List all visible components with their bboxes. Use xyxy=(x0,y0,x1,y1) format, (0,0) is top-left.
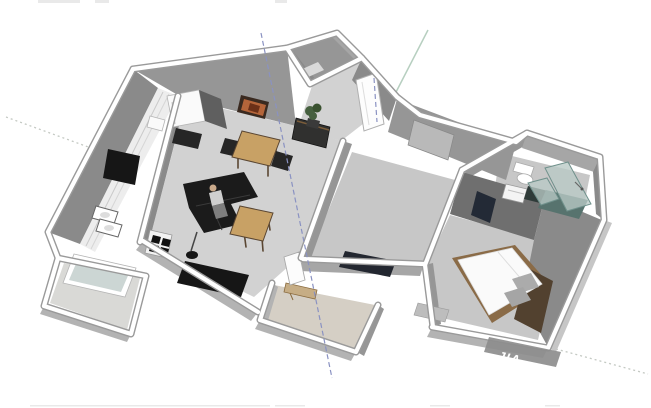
plant-foliage xyxy=(309,112,317,120)
sink-bowl xyxy=(100,212,110,218)
plant-foliage xyxy=(313,104,322,113)
bottom-edge-artifact xyxy=(30,405,270,407)
top-edge-artifact xyxy=(95,0,109,3)
bottom-edge-artifact xyxy=(275,405,305,407)
apartment-model xyxy=(40,33,612,361)
screenshot-canvas: JIA xyxy=(0,0,651,408)
sink-bowl xyxy=(104,225,114,231)
top-edge-artifact xyxy=(275,0,287,3)
bottom-edge-artifact xyxy=(430,405,450,407)
green-axis-line xyxy=(394,30,428,96)
floorplan-3d-render: JIA xyxy=(0,0,651,408)
top-edge-artifact xyxy=(38,0,80,3)
shower-head-dot xyxy=(581,188,584,191)
person-head xyxy=(210,185,217,192)
dotted-guide-bottom-right xyxy=(556,349,648,374)
lamp-shade xyxy=(186,251,198,259)
dotted-guide-left xyxy=(6,117,102,152)
bottom-edge-artifact xyxy=(545,405,560,407)
